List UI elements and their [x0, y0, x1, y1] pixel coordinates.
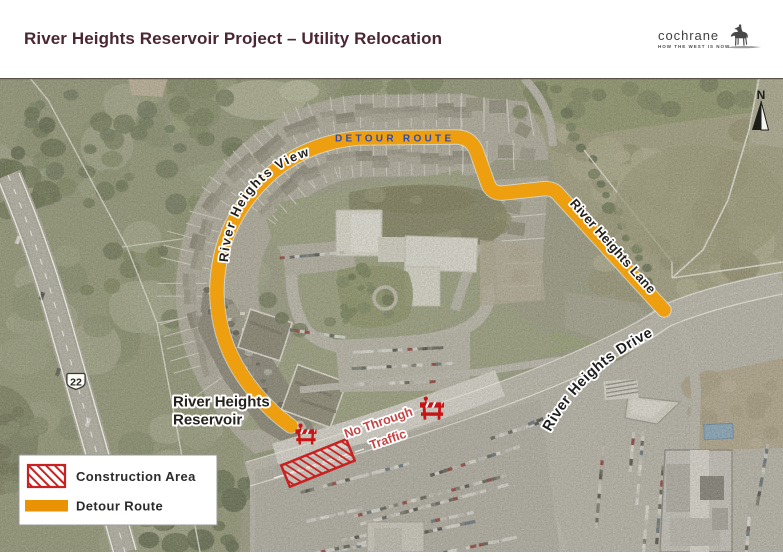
- svg-text:Reservoir: Reservoir: [173, 412, 242, 429]
- svg-text:Detour Route: Detour Route: [76, 499, 163, 514]
- svg-text:22: 22: [70, 377, 82, 389]
- svg-text:DETOUR ROUTE: DETOUR ROUTE: [335, 134, 454, 145]
- svg-text:Construction Area: Construction Area: [76, 469, 196, 484]
- svg-text:River Heights: River Heights: [173, 394, 270, 411]
- svg-text:N: N: [757, 88, 766, 102]
